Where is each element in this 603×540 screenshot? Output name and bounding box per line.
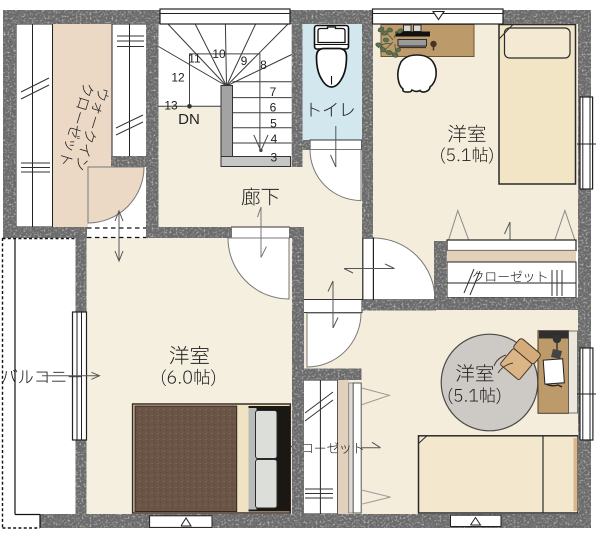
svg-text:11: 11 bbox=[188, 52, 201, 66]
svg-text:10: 10 bbox=[212, 47, 226, 61]
svg-text:3: 3 bbox=[270, 151, 277, 165]
svg-text:4: 4 bbox=[271, 132, 278, 146]
svg-text:12: 12 bbox=[171, 71, 185, 85]
svg-text:DN: DN bbox=[178, 111, 200, 128]
svg-text:8: 8 bbox=[260, 58, 267, 72]
svg-text:6: 6 bbox=[270, 101, 277, 115]
svg-text:9: 9 bbox=[241, 54, 248, 68]
svg-text:7: 7 bbox=[270, 85, 277, 99]
svg-text:13: 13 bbox=[164, 99, 178, 113]
svg-text:5: 5 bbox=[270, 117, 277, 131]
